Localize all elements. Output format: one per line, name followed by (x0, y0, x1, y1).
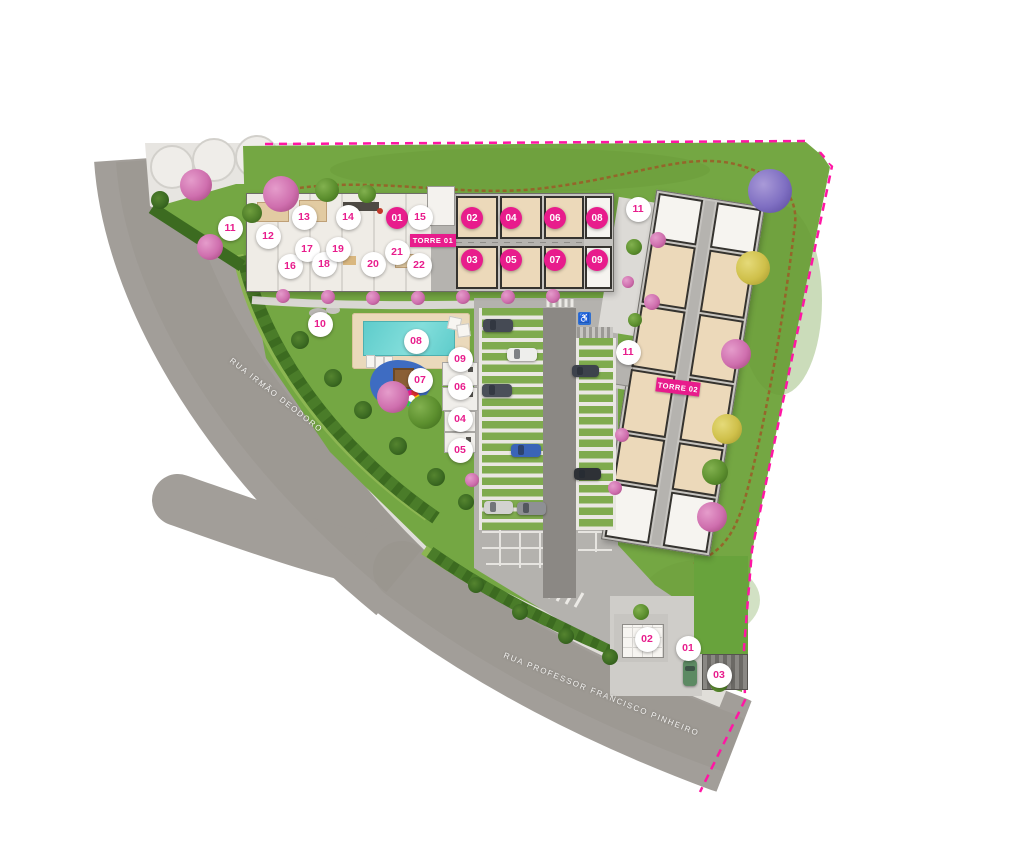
amenity-marker-04[interactable]: 04 (448, 407, 473, 432)
amenity-marker-11[interactable]: 11 (218, 216, 243, 241)
amenity-marker-14[interactable]: 14 (336, 205, 361, 230)
amenity-marker-09[interactable]: 09 (448, 347, 473, 372)
unit-marker-07[interactable]: 07 (544, 249, 566, 271)
amenity-marker-07[interactable]: 07 (408, 368, 433, 393)
amenity-marker-13[interactable]: 13 (292, 205, 317, 230)
amenity-marker-15[interactable]: 15 (408, 205, 433, 230)
unit-marker-06[interactable]: 06 (544, 207, 566, 229)
unit-marker-01[interactable]: 01 (386, 207, 408, 229)
amenity-marker-01[interactable]: 01 (676, 636, 701, 661)
unit-marker-03[interactable]: 03 (461, 249, 483, 271)
amenity-marker-05[interactable]: 05 (448, 438, 473, 463)
amenity-marker-03[interactable]: 03 (707, 663, 732, 688)
amenity-marker-21[interactable]: 21 (385, 240, 410, 265)
unit-marker-09[interactable]: 09 (586, 249, 608, 271)
site-plan: ♿ RUA IRMÃO DEODORO RUA PROFESSOR FRANCI… (0, 0, 1012, 844)
amenity-marker-11[interactable]: 11 (626, 197, 651, 222)
amenity-marker-08[interactable]: 08 (404, 329, 429, 354)
unit-marker-02[interactable]: 02 (461, 207, 483, 229)
amenity-marker-02[interactable]: 02 (635, 627, 660, 652)
amenity-marker-12[interactable]: 12 (256, 224, 281, 249)
amenity-marker-11[interactable]: 11 (616, 340, 641, 365)
amenity-marker-06[interactable]: 06 (448, 375, 473, 400)
unit-marker-08[interactable]: 08 (586, 207, 608, 229)
amenity-marker-10[interactable]: 10 (308, 312, 333, 337)
unit-marker-04[interactable]: 04 (500, 207, 522, 229)
markers-layer: 0102040608030507091112131415161718192021… (0, 0, 1012, 844)
amenity-marker-19[interactable]: 19 (326, 237, 351, 262)
amenity-marker-22[interactable]: 22 (407, 253, 432, 278)
unit-marker-05[interactable]: 05 (500, 249, 522, 271)
amenity-marker-20[interactable]: 20 (361, 252, 386, 277)
